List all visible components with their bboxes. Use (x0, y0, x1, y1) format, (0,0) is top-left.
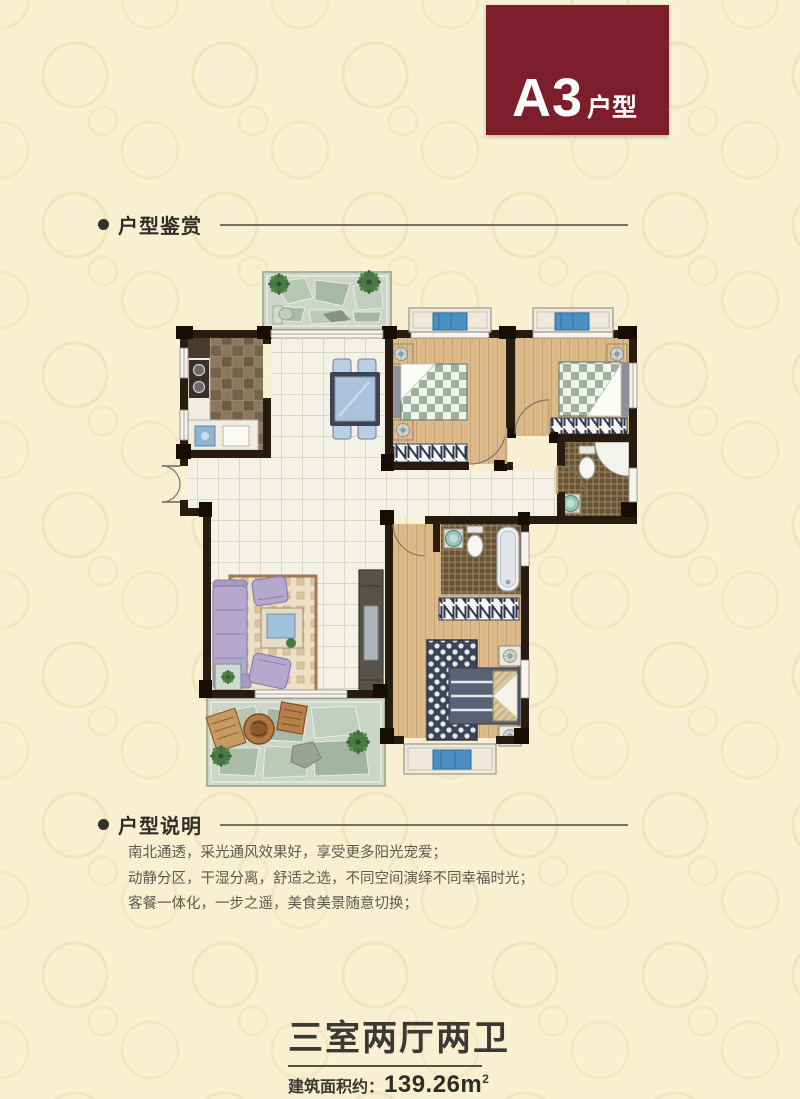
bottom-balcony (206, 698, 385, 786)
chair (333, 359, 351, 374)
corridor-floor (391, 470, 557, 518)
master-bedroom (427, 640, 524, 746)
nightstand (504, 650, 517, 663)
section-bullet-icon (98, 819, 109, 830)
potted-plant (244, 714, 274, 744)
lounge-chair (277, 702, 307, 734)
description-line: 动静分区，干湿分离，舒适之选，不同空间演绎不同幸福时光； (128, 867, 688, 893)
unit-code-suffix: 户型 (587, 96, 637, 121)
wardrobe (551, 418, 627, 434)
tv (364, 606, 378, 660)
unit-badge: A3 户型 (486, 5, 669, 135)
bay-window-bedroom1 (409, 308, 491, 332)
footer-underline (288, 1065, 482, 1067)
description-line: 南北通透，采光通风效果好，享受更多阳光宠爱； (128, 841, 688, 867)
toilet (579, 457, 595, 479)
chair (358, 359, 376, 374)
flyer-page: A3 户型 户型鉴赏 (0, 0, 800, 1099)
plant-icon (357, 270, 381, 294)
entry-double-door (162, 466, 180, 502)
chair (358, 424, 376, 439)
nightstand (395, 348, 408, 361)
floorplan (155, 268, 675, 800)
plant-icon (268, 273, 290, 295)
plant-icon (346, 730, 370, 754)
window-cushion (433, 313, 467, 330)
headboard (393, 366, 401, 418)
armchair (251, 576, 288, 606)
headboard (621, 362, 629, 416)
nightstand (397, 424, 410, 437)
wardrobe (387, 444, 467, 462)
section-title: 户型说明 (118, 810, 202, 839)
section-header-description: 户型说明 (98, 810, 628, 839)
chair (333, 424, 351, 439)
plant-icon (221, 670, 235, 684)
top-balcony (263, 270, 391, 330)
nightstand (611, 348, 624, 361)
footer: 三室两厅两卫 建筑面积约： 139.26m 2 (288, 1010, 568, 1099)
window-cushion (555, 313, 589, 330)
bay-window-master (404, 744, 496, 774)
area-value: 139.26m (384, 1071, 482, 1099)
section-divider-line (220, 824, 628, 826)
entry-floor (188, 458, 391, 518)
built-area: 建筑面积约： 139.26m 2 (288, 1071, 568, 1099)
toilet (467, 535, 483, 557)
window-cushion (433, 750, 471, 769)
plant-icon (210, 745, 232, 767)
description-line: 客餐一体化，一步之遥，美食美景随意切换； (128, 892, 688, 918)
wardrobe (439, 598, 519, 620)
section-header-appreciation: 户型鉴赏 (98, 210, 628, 239)
section-title: 户型鉴赏 (118, 210, 202, 239)
description-text: 南北通透，采光通风效果好，享受更多阳光宠爱； 动静分区，干湿分离，舒适之选，不同… (128, 841, 688, 918)
window-band (271, 330, 383, 338)
section-bullet-icon (98, 219, 109, 230)
layout-summary: 三室两厅两卫 (288, 1010, 568, 1061)
area-label: 建筑面积约： (288, 1073, 384, 1097)
bay-window-bedroom2 (533, 308, 613, 332)
area-superscript: 2 (482, 1072, 489, 1086)
section-divider-line (220, 224, 628, 226)
unit-code: A3 (512, 71, 583, 125)
